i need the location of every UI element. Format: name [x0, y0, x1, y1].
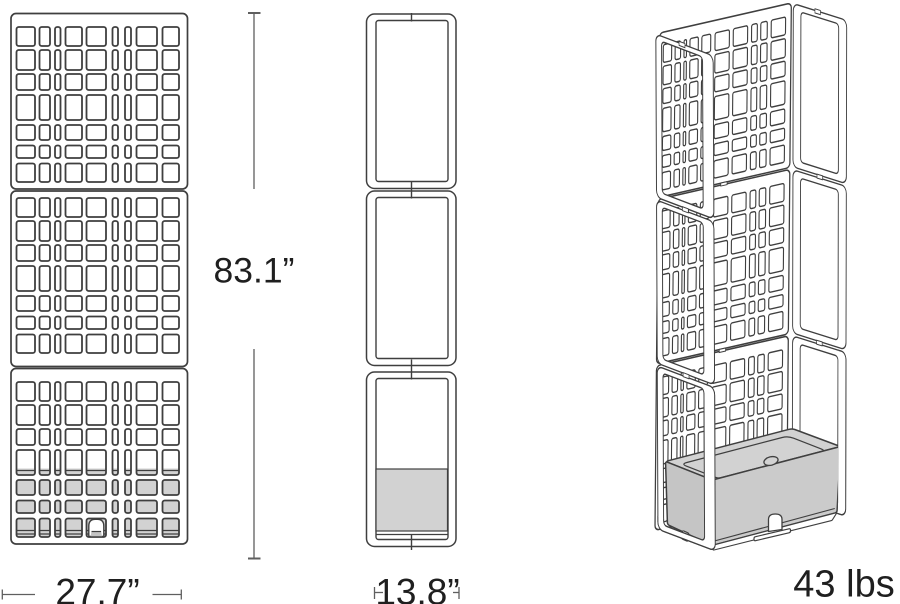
svg-text:83.1”: 83.1” [214, 251, 295, 291]
svg-text:13.8”: 13.8” [375, 572, 459, 604]
svg-text:43 lbs: 43 lbs [793, 564, 894, 604]
svg-text:27.7”: 27.7” [55, 572, 139, 604]
